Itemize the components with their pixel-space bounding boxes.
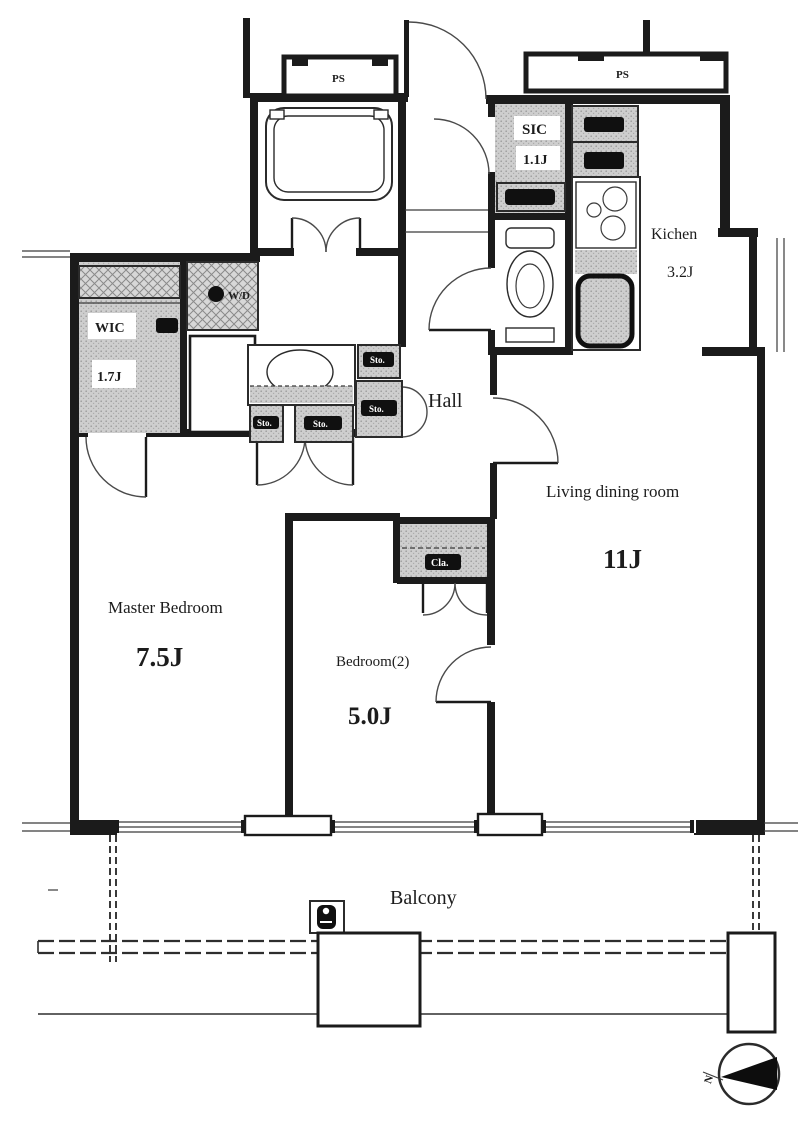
- wic-rod-mark: [156, 318, 178, 333]
- pillar-center: [318, 933, 420, 1026]
- svg-text:Sto.: Sto.: [313, 419, 328, 429]
- washer-pan: [190, 336, 255, 432]
- bath-door-arc-right: [326, 218, 360, 252]
- cla-label: Cla.: [431, 558, 449, 569]
- svg-text:Sto.: Sto.: [370, 355, 385, 365]
- sic-door-arc: [434, 119, 489, 174]
- hall-storage-door-arc-bottom: [402, 412, 427, 437]
- toilet-room: [495, 220, 565, 347]
- bathroom: [266, 108, 392, 200]
- hall-storage-upper: Sto.: [358, 345, 400, 378]
- sic-area-label: 1.1J: [523, 153, 548, 168]
- kitchen-fixtures: [572, 106, 640, 350]
- master-bedroom-label: Master Bedroom: [108, 598, 223, 617]
- window-bedroom2: [331, 820, 478, 833]
- pillar-right: [728, 933, 775, 1032]
- living-door-arc: [493, 398, 558, 463]
- closet-bedroom2: Cla.: [400, 524, 487, 577]
- compass: N: [702, 1044, 779, 1104]
- south-windows: [115, 814, 696, 835]
- window-sill-box-1: [245, 816, 331, 835]
- svg-text:Sto.: Sto.: [369, 404, 384, 414]
- hall-storage-door-arc-top: [402, 387, 427, 412]
- sic-label: SIC: [522, 122, 547, 138]
- window-sill-box-2: [478, 814, 542, 835]
- wic-label: WIC: [95, 321, 125, 336]
- living-dining-area: 11J: [603, 544, 642, 574]
- ps-right-label: PS: [616, 69, 629, 81]
- pipe-shaft-right: PS: [526, 52, 726, 91]
- wic-shelf: [79, 266, 180, 298]
- balcony-label: Balcony: [390, 887, 457, 909]
- shoe-cabinet-stack: [572, 106, 638, 179]
- bath-door-arc-left: [292, 218, 326, 252]
- kitchen-sink: [578, 276, 632, 346]
- hall-storage-lower: Sto.: [356, 381, 402, 437]
- shoe-in-closet: SIC 1.1J: [495, 104, 565, 213]
- storage-under-counter-2: Sto.: [295, 405, 353, 442]
- wic-area-label: 1.7J: [97, 370, 122, 385]
- entrance-door-arc: [409, 22, 486, 99]
- balcony-structure: [38, 835, 775, 1032]
- toilet-tank: [506, 228, 554, 248]
- floorplan-drawing: PS PS: [0, 0, 800, 1123]
- sic-cabinet: [497, 183, 565, 211]
- hall-label: Hall: [428, 390, 463, 412]
- floorplan-page: PS PS: [0, 0, 800, 1123]
- wd-label: W/D: [228, 290, 250, 302]
- pipe-shaft-left: PS: [284, 57, 396, 96]
- toilet-bowl: [507, 251, 553, 317]
- compass-north-label: N: [702, 1074, 716, 1086]
- washroom-door-arc-left: [257, 437, 305, 485]
- toilet-door-arc: [429, 268, 491, 330]
- master-bedroom-area: 7.5J: [136, 642, 183, 672]
- storage-under-counter-1: Sto.: [250, 405, 283, 442]
- window-living: [542, 820, 696, 833]
- bedroom2-area: 5.0J: [348, 703, 392, 730]
- kitchen-label: Kichen: [651, 226, 697, 243]
- ps-left-label: PS: [332, 73, 345, 85]
- bedroom2-label: Bedroom(2): [336, 654, 409, 670]
- svg-text:Sto.: Sto.: [257, 418, 272, 428]
- washroom: Sto. Sto.: [248, 345, 355, 442]
- bedroom2-door-arc: [436, 647, 491, 702]
- entrance-door-leaf: [404, 20, 409, 97]
- living-dining-label: Living dining room: [546, 482, 679, 501]
- balcony-drain-unit: [310, 901, 344, 933]
- window-master: [115, 820, 245, 833]
- walk-in-closet: WIC 1.7J: [79, 262, 180, 433]
- closet-door-arc-left: [423, 583, 455, 615]
- closet-door-arc-right: [455, 583, 487, 615]
- washroom-door-arc-right: [305, 437, 353, 485]
- toilet-shelf: [506, 328, 554, 342]
- wic-door-arc: [86, 437, 146, 497]
- kitchen-area: 3.2J: [667, 264, 693, 281]
